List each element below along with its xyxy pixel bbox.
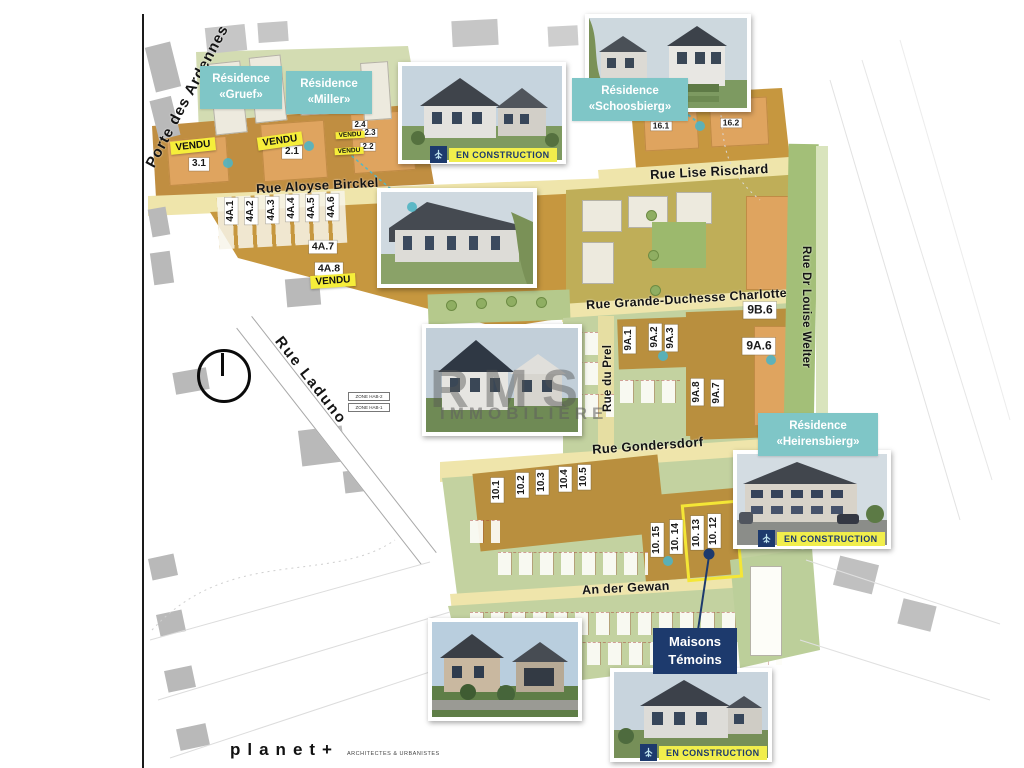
building — [582, 200, 622, 232]
label-residence-heirensbierg: Résidence «Heirensbierg» — [758, 413, 878, 456]
plot-10-12: 10. 12 — [708, 514, 721, 548]
plot-10-4: 10.4 — [559, 466, 572, 491]
marker-dot — [663, 556, 673, 566]
construction-badge-label: EN CONSTRUCTION — [449, 148, 557, 162]
north-indicator — [197, 349, 251, 403]
marker-dot — [658, 351, 668, 361]
maisons-temoins-marker-dot — [704, 549, 715, 560]
road-rue-laduno — [236, 316, 436, 565]
plot-9b-6: 9B.6 — [743, 302, 776, 319]
tree-icon — [476, 298, 487, 309]
label-residence-miller: Résidence «Miller» — [286, 71, 372, 114]
plot-16-1: 16.1 — [651, 122, 672, 131]
tree-icon — [648, 250, 659, 261]
architect-brand: planet+ ARCHITECTES & URBANISTES — [230, 740, 440, 760]
house-row — [470, 520, 500, 543]
construction-badge-bottom: EN CONSTRUCTION — [640, 744, 767, 761]
building — [451, 19, 498, 47]
construction-logo-icon — [640, 744, 657, 761]
plot-4a-1: 4A.1 — [225, 197, 238, 224]
plot-9a-8: 9A.8 — [691, 378, 704, 405]
construction-badge-top: EN CONSTRUCTION — [430, 146, 557, 163]
plot-16-2: 16.2 — [721, 119, 742, 128]
plot-4a-2: 4A.2 — [245, 197, 258, 224]
marker-dot — [766, 355, 776, 365]
plot-4a-3: 4A.3 — [266, 196, 279, 223]
street-rue-dr-louise-welter: Rue Dr Louise Welter — [800, 246, 812, 368]
tree-icon — [446, 300, 457, 311]
plan-border-line — [142, 14, 144, 768]
marker-dot — [407, 202, 417, 212]
building — [176, 723, 210, 751]
building — [746, 196, 792, 290]
construction-logo-icon — [758, 530, 775, 547]
zone-hab-2-label: ZONE HAB-2 — [348, 392, 390, 401]
building — [676, 192, 712, 224]
maisons-temoins-line: Maisons — [669, 634, 721, 649]
plot-10-13: 10. 13 — [691, 516, 704, 550]
residence-name: «Schoosbierg» — [589, 101, 671, 113]
vendu-badge: VENDU — [335, 131, 364, 139]
building — [150, 251, 174, 285]
houses-photo — [432, 622, 578, 717]
building — [897, 598, 936, 631]
watermark-subtext: IMMOBILIÈRE — [440, 404, 608, 424]
photo-houses-southwest — [428, 618, 582, 721]
building — [145, 42, 181, 93]
plot-2-3: 2.3 — [362, 129, 377, 137]
inner-garden — [652, 222, 706, 268]
tree-icon — [536, 297, 547, 308]
plot-4a-5: 4A.5 — [306, 194, 319, 221]
building — [164, 665, 196, 692]
building — [257, 21, 288, 43]
residence-name: «Gruef» — [219, 89, 262, 101]
label-residence-schoosbierg: Résidence «Schoosbierg» — [572, 78, 688, 121]
residence-name: Résidence — [789, 420, 847, 432]
house-row — [498, 552, 648, 575]
construction-badge-heirensbierg: EN CONSTRUCTION — [758, 530, 885, 547]
plot-9a-1: 9A.1 — [623, 326, 636, 353]
construction-badge-label: EN CONSTRUCTION — [659, 746, 767, 760]
vendu-badge: VENDU — [334, 147, 363, 155]
street-rue-du-prel: Rue du Prel — [602, 345, 614, 412]
marker-dot — [695, 121, 705, 131]
label-maisons-temoins: Maisons Témoins — [653, 628, 737, 674]
residence-name: Résidence — [601, 85, 659, 97]
photo-rowhouses — [377, 188, 537, 288]
building — [148, 554, 178, 581]
tree-icon — [646, 210, 657, 221]
brand-tagline: ARCHITECTES & URBANISTES — [347, 751, 440, 757]
house-render — [381, 192, 533, 284]
plot-2-1: 2.1 — [282, 146, 302, 159]
construction-logo-icon — [430, 146, 447, 163]
plot-9a-6: 9A.6 — [742, 338, 775, 355]
plot-4a-6: 4A.6 — [326, 193, 339, 220]
zone-hab-1-label: ZONE HAB-1 — [348, 403, 390, 412]
tree-icon — [506, 296, 517, 307]
residence-name: «Heirensbierg» — [776, 436, 859, 448]
plot-10-2: 10.2 — [516, 472, 529, 497]
building — [582, 242, 614, 284]
brand-logo: planet+ — [230, 740, 339, 760]
building — [156, 610, 186, 637]
residence-name: Résidence — [300, 78, 358, 90]
north-needle — [221, 353, 224, 376]
house-row — [620, 380, 680, 403]
plot-10-14: 10. 14 — [670, 520, 683, 554]
plot-4a-4: 4A.4 — [286, 194, 299, 221]
green-strip-east-pale — [816, 146, 828, 446]
plot-9a-2: 9A.2 — [649, 323, 662, 350]
marker-dot — [223, 158, 233, 168]
plot-3-1: 3.1 — [189, 158, 209, 171]
label-residence-gruef: Résidence «Gruef» — [200, 66, 282, 109]
plot-10-1: 10.1 — [491, 477, 504, 502]
plot-9a-3: 9A.3 — [665, 324, 678, 351]
marker-dot — [304, 141, 314, 151]
construction-badge-label: EN CONSTRUCTION — [777, 532, 885, 546]
plot-10-15: 10. 15 — [651, 523, 664, 557]
plot-10-3: 10.3 — [536, 469, 549, 494]
plot-9a-7: 9A.7 — [711, 379, 724, 406]
residence-name: Résidence — [212, 73, 270, 85]
maisons-temoins-line: Témoins — [668, 652, 721, 667]
plot-4a-7: 4A.7 — [309, 240, 337, 253]
plot-10-5: 10.5 — [578, 464, 591, 489]
building — [833, 556, 879, 595]
residence-name: «Miller» — [308, 94, 351, 106]
building — [547, 25, 578, 47]
building — [750, 566, 782, 656]
site-plan: Porte des Ardennes Rue Aloyse Birckel Ru… — [0, 0, 1024, 768]
